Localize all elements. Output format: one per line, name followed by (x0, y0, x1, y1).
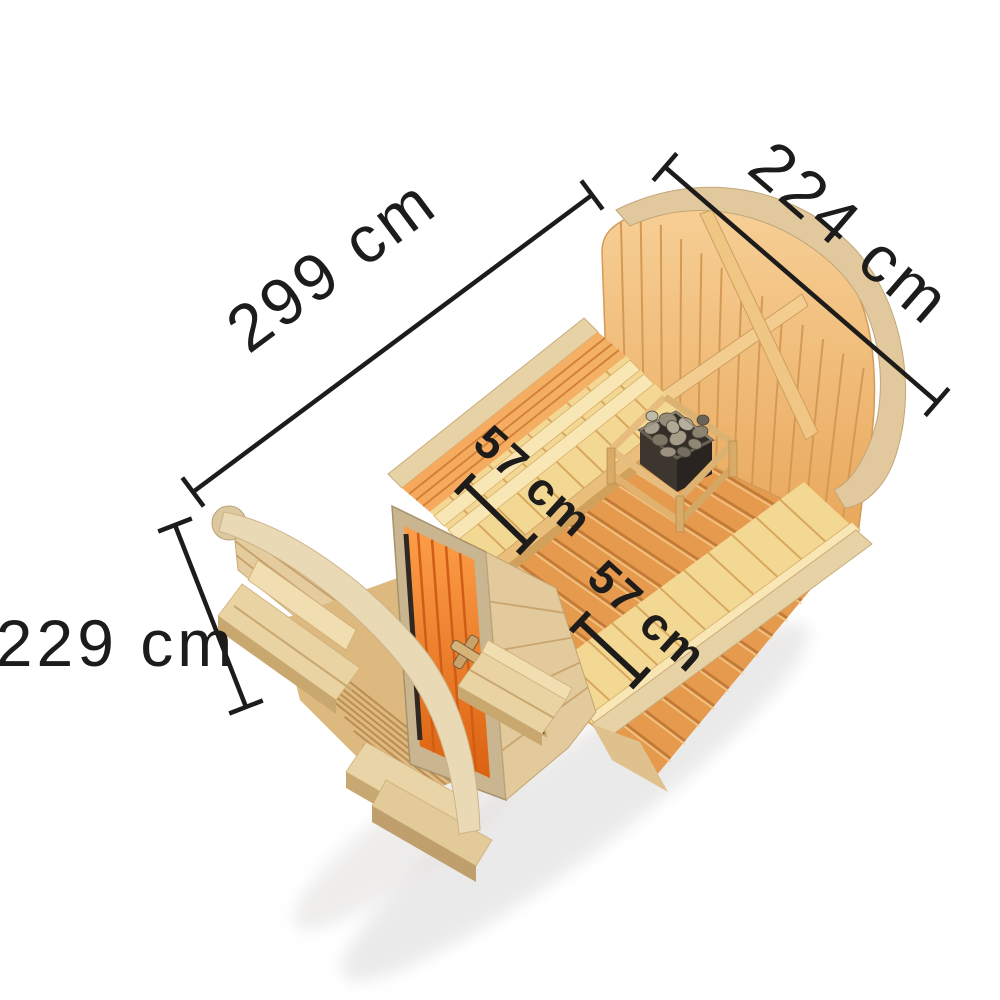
sauna-diagram-illustration: 299 cm 224 cm 229 cm 57 cm 57 cm (0, 0, 1000, 1000)
product-image: 299 cm 224 cm 229 cm 57 cm 57 cm (0, 0, 1000, 1000)
dimension-height: 229 cm (0, 519, 263, 714)
dimension-height-label: 229 cm (0, 606, 236, 680)
dimension-length-label: 299 cm (213, 163, 450, 366)
